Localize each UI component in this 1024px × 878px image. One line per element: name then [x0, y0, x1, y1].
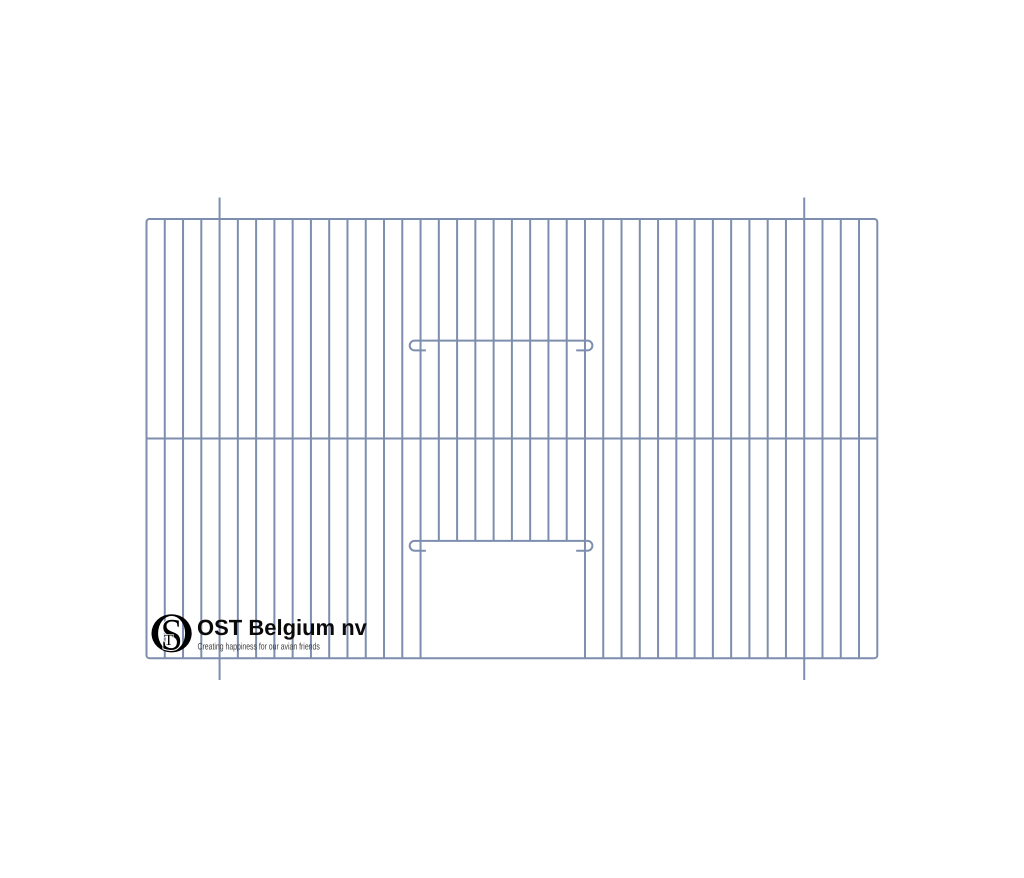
- svg-text:Creating happiness for our avi: Creating happiness for our avian friends: [198, 642, 320, 653]
- svg-text:OST Belgium nv: OST Belgium nv: [197, 615, 368, 640]
- svg-text:T: T: [164, 632, 174, 649]
